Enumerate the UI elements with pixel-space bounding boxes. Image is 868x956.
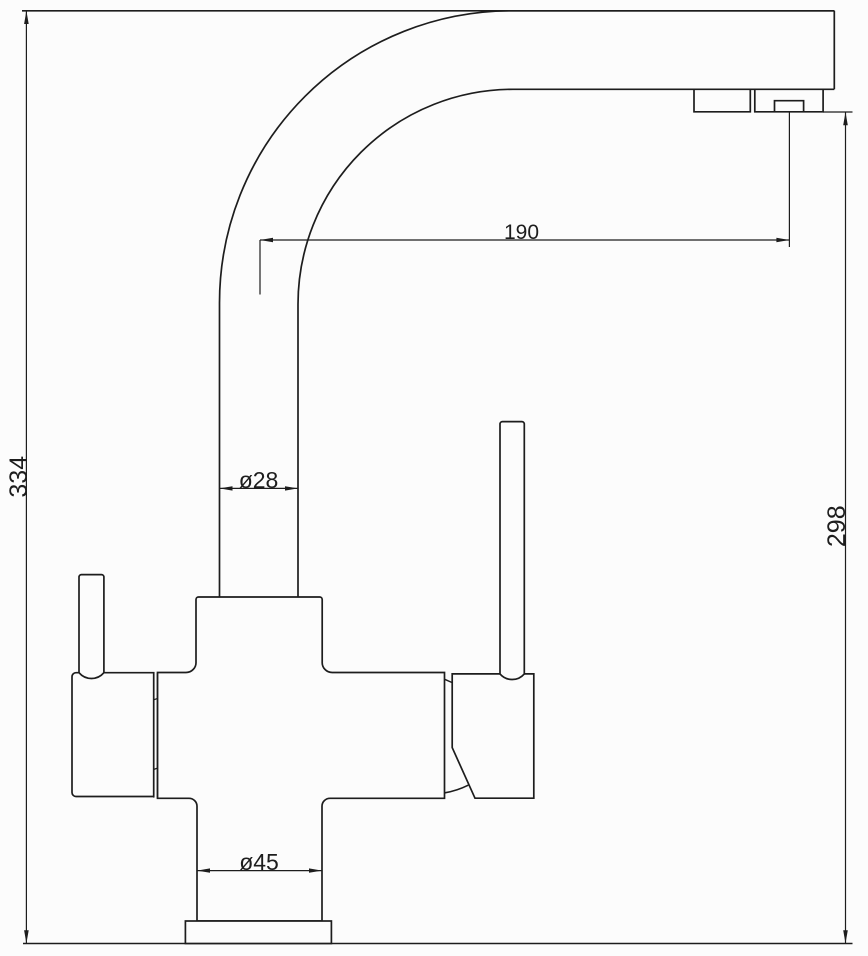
svg-text:ø45: ø45 — [239, 849, 279, 875]
svg-text:334: 334 — [5, 456, 33, 498]
svg-text:ø28: ø28 — [239, 467, 279, 493]
svg-text:190: 190 — [504, 221, 539, 244]
svg-text:298: 298 — [823, 505, 851, 547]
